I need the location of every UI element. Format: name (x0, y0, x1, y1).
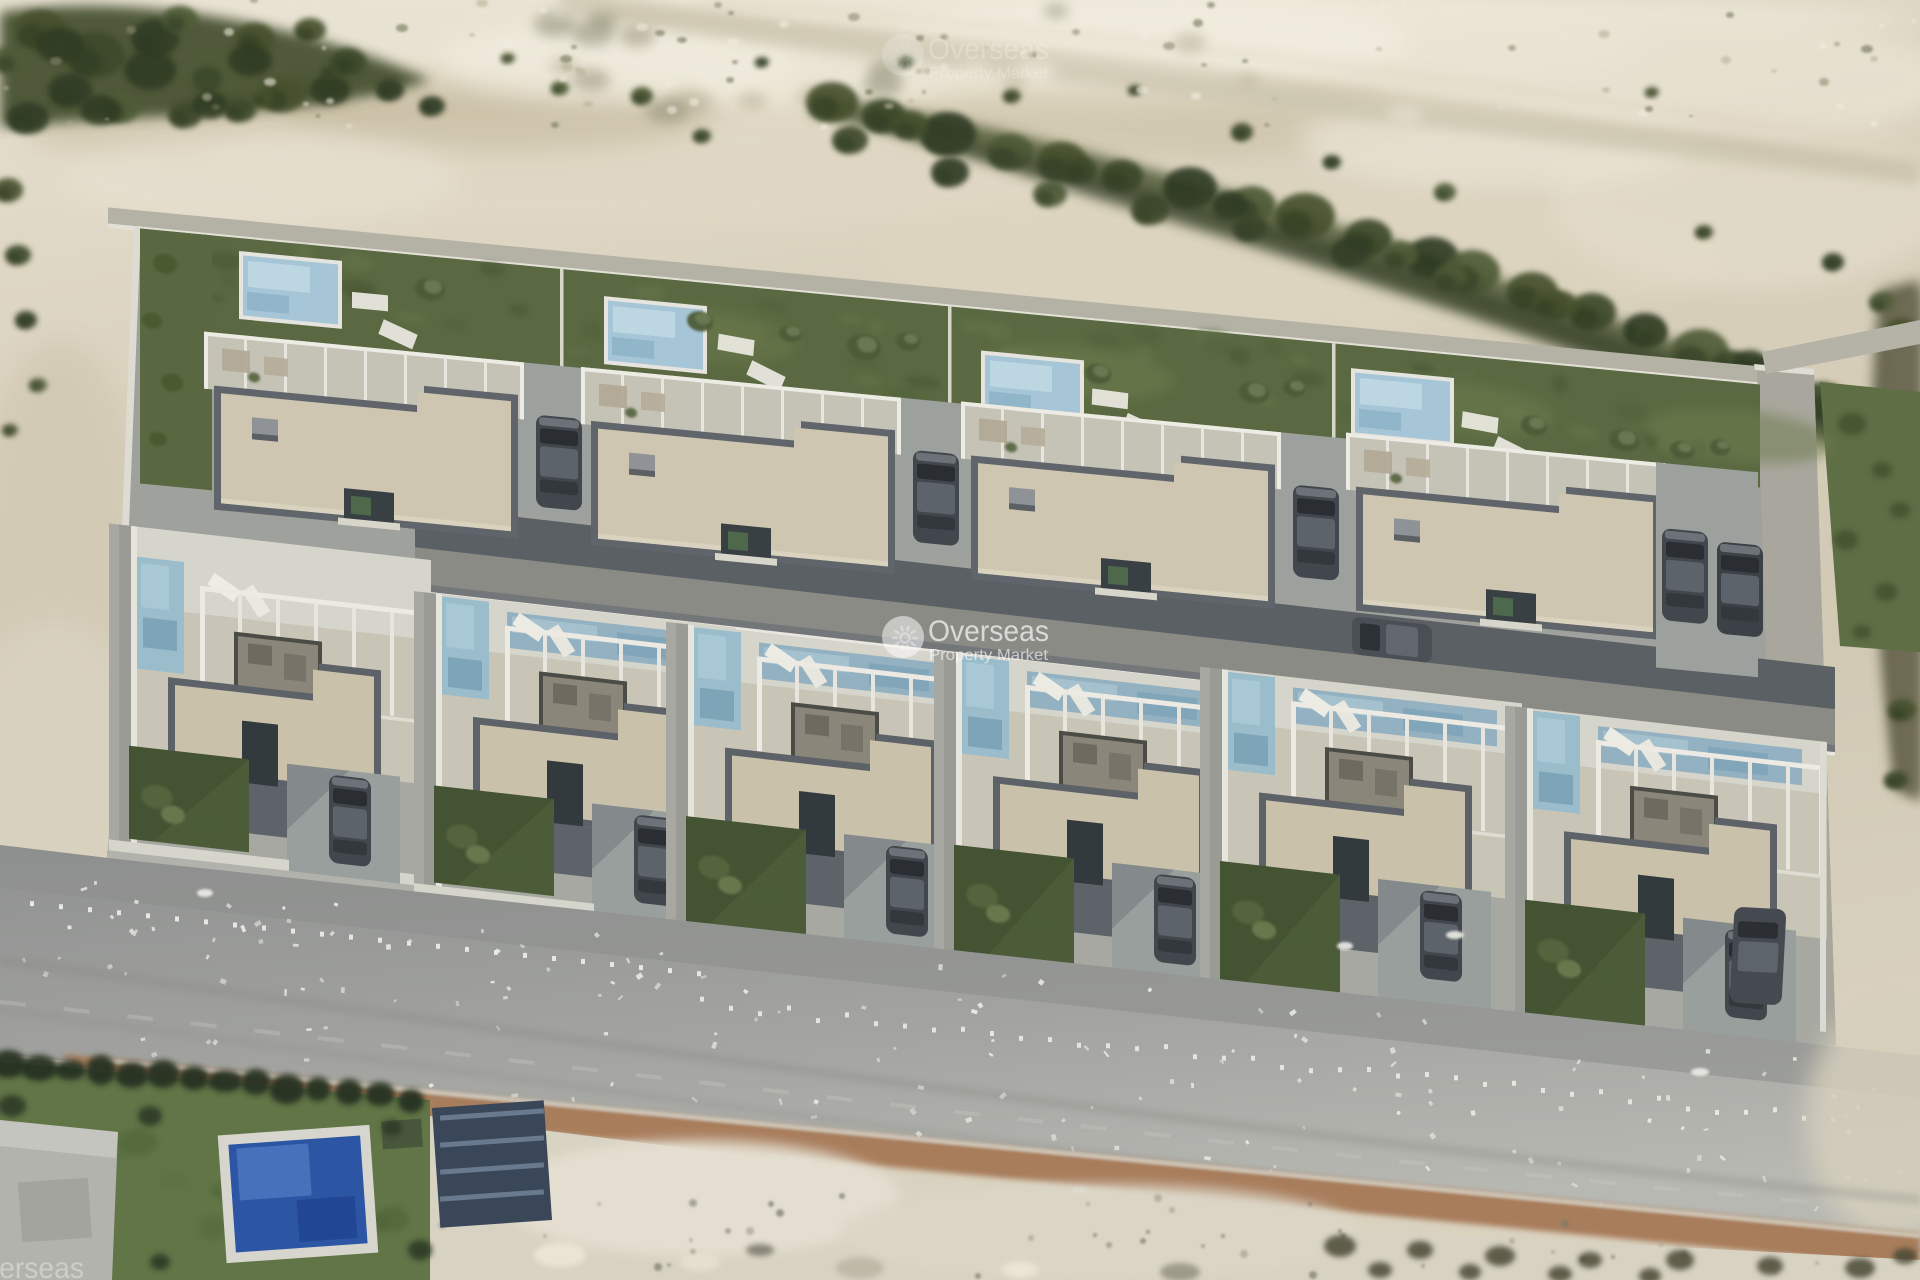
svg-text:Property Market: Property Market (929, 647, 1049, 664)
svg-text:Overseas: Overseas (928, 33, 1049, 66)
svg-text:Overseas: Overseas (928, 615, 1049, 648)
svg-text:Property Market: Property Market (929, 65, 1049, 82)
svg-text:Overseas: Overseas (0, 1252, 84, 1280)
